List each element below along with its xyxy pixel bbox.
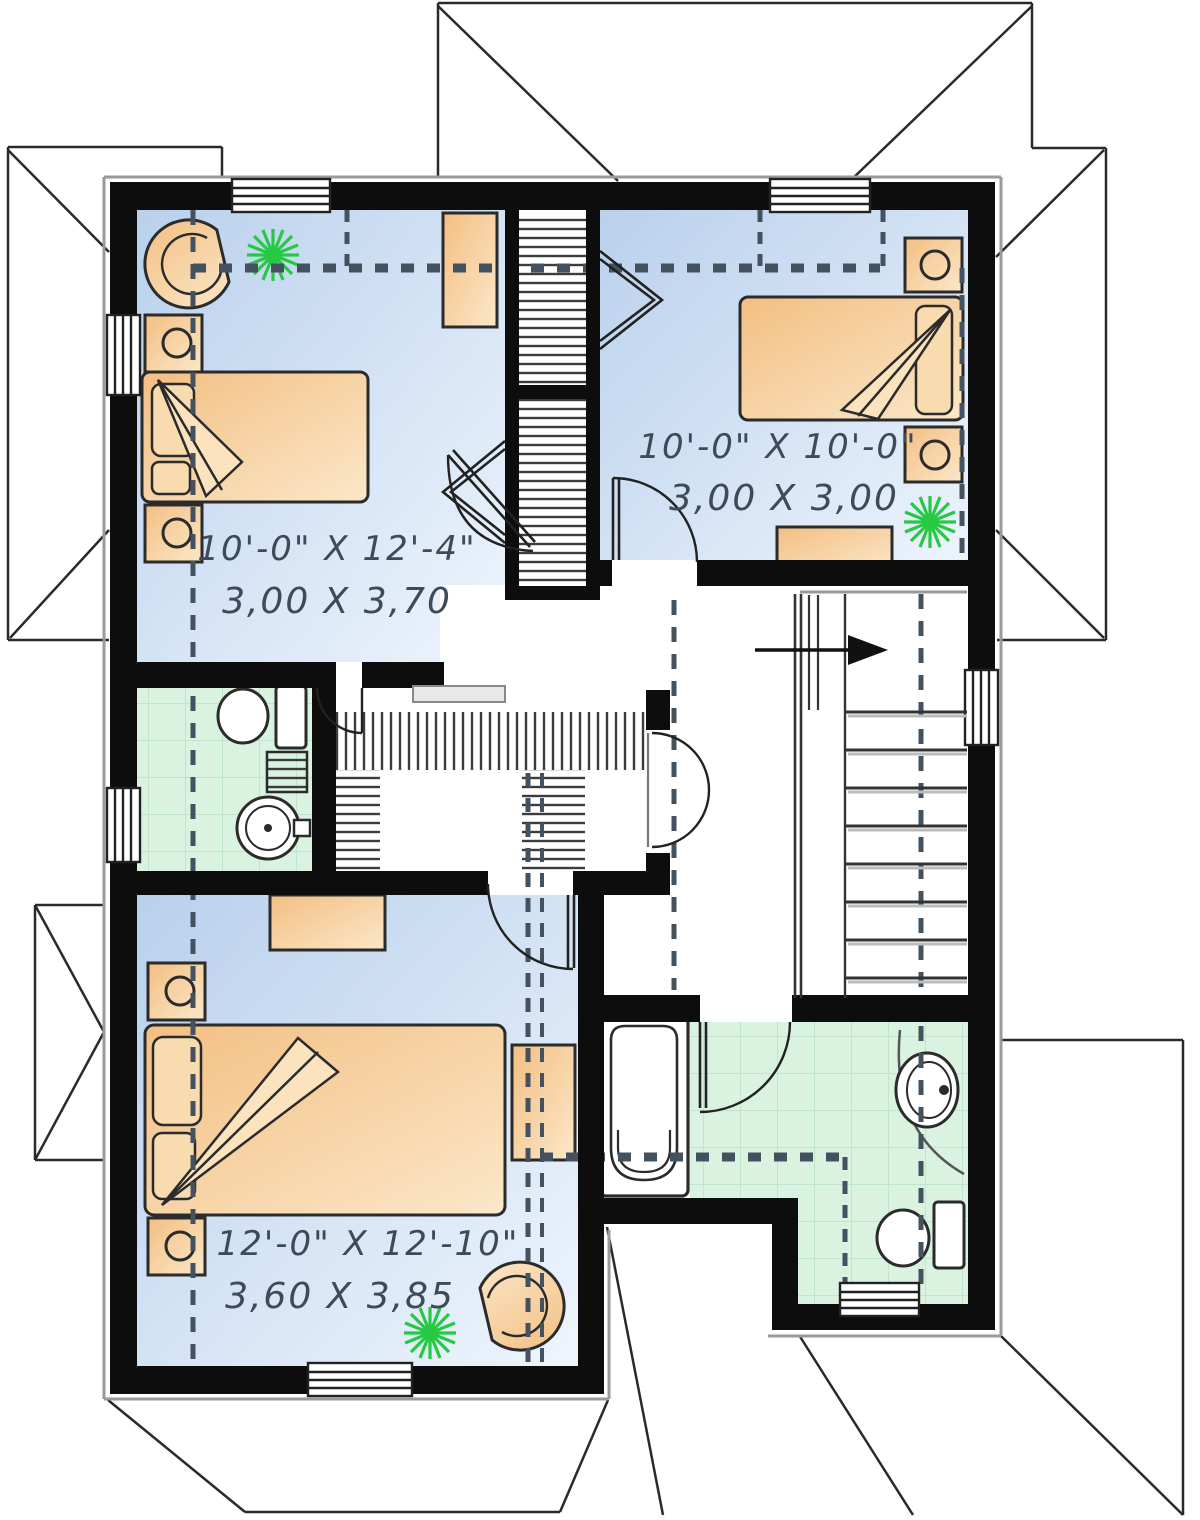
nightstand-icon [148,1218,205,1275]
bedroom1-dim-metric: 3,00 X 3,70 [222,581,452,622]
bedroom3-dim-metric: 3,60 X 3,85 [225,1276,455,1317]
window-icon [965,670,998,745]
nightstand-icon [905,238,962,292]
window-icon [107,788,140,862]
bedroom1-dim-imperial: 10'-0" X 12'-4" [197,529,476,569]
dresser-icon [270,895,385,950]
bedroom3-dim-imperial: 12'-0" X 12'-10" [217,1224,520,1264]
window-icon [770,179,870,212]
window-icon [232,179,330,212]
window-icon [840,1283,919,1316]
bedroom2-dim-metric: 3,00 X 3,00 [669,478,899,519]
bedroom2-dim-imperial: 10'-0" X 10'-0" [638,427,917,467]
bed-icon [142,372,368,502]
shelf-icon [413,686,505,702]
nightstand-icon [148,963,205,1020]
bed-icon [145,1025,505,1215]
bed-icon [740,297,963,420]
bathtub-icon [600,1014,688,1196]
floor-plan: 10'-0" X 12'-4" 3,00 X 3,70 10'-0" X 10'… [0,0,1200,1520]
window-icon [308,1363,412,1396]
linen-shelf-icon [267,752,307,792]
window-icon [107,315,140,395]
